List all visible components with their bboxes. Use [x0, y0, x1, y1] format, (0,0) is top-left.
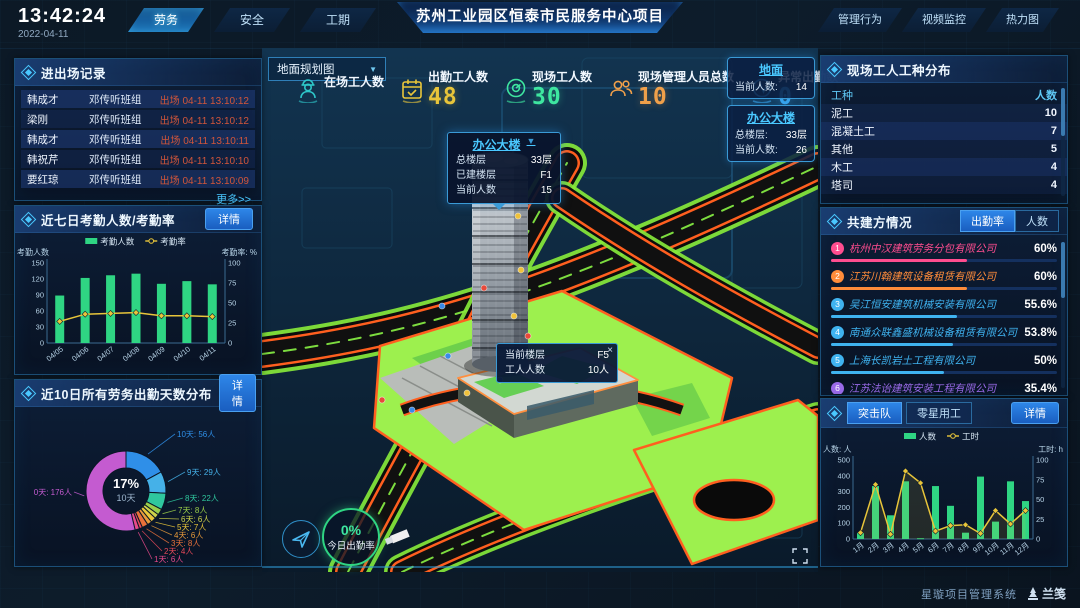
worker-name: 韩成才	[27, 92, 89, 107]
time-text: 13:42:24	[18, 5, 106, 28]
assault-chart: 01002003004005000255075100人数: 人工时: h人数工时…	[821, 428, 1065, 565]
svg-text:50: 50	[1036, 495, 1044, 504]
partner-item: 3吴江恒安建筑机械安装有限公司55.6%	[831, 297, 1057, 318]
building-popup-title[interactable]: 办公大楼	[473, 136, 521, 153]
system-name: 星璇项目管理系统	[921, 586, 1017, 602]
partner-value: 60%	[1034, 271, 1057, 283]
rank-badge: 4	[831, 326, 844, 339]
entry-exit-row: 韩成才邓传听班组出场 04-11 13:10:11	[21, 130, 255, 148]
svg-text:工时: 工时	[962, 432, 980, 442]
worker-type-count: 5	[1017, 143, 1057, 155]
svg-text:04/06: 04/06	[70, 344, 90, 363]
partner-progress-fill	[831, 287, 967, 290]
people-icon	[608, 77, 634, 109]
svg-text:50: 50	[228, 299, 236, 308]
svg-text:0: 0	[40, 339, 44, 348]
svg-text:2月: 2月	[866, 540, 881, 554]
svg-text:17%: 17%	[113, 476, 139, 491]
popup-row-value: F1	[540, 168, 552, 183]
panel-title: 近七日考勤人数/考勤率	[41, 210, 175, 229]
svg-text:04/07: 04/07	[95, 344, 115, 363]
exit-event: 出场 04-11 13:10:11	[160, 132, 249, 147]
worker-type-count: 4	[1017, 179, 1057, 191]
svg-text:04/05: 04/05	[45, 344, 65, 363]
clock: 13:42:24 2022-04-11	[18, 5, 106, 40]
svg-text:400: 400	[837, 471, 850, 480]
svg-text:04/11: 04/11	[198, 344, 218, 362]
svg-text:04/09: 04/09	[146, 344, 166, 363]
floor-card-row-label: 当前人数:	[735, 80, 778, 95]
detail-button[interactable]: 详情	[1011, 402, 1059, 424]
panel-header: 突击队零星用工 详情	[821, 399, 1067, 428]
fullscreen-button[interactable]	[792, 548, 808, 564]
floor-card-title[interactable]: 地面	[735, 61, 807, 78]
partner-name: 吴江恒安建筑机械安装有限公司	[849, 297, 1019, 312]
partner-item: 5上海长凯岩土工程有限公司50%	[831, 353, 1057, 374]
diamond-icon	[21, 64, 37, 80]
svg-text:人数: 人: 人数: 人	[823, 444, 851, 454]
partner-item: 4南通众联鑫盛机械设备租赁有限公司53.8%	[831, 325, 1057, 346]
svg-text:考勤率: %: 考勤率: %	[221, 247, 257, 257]
col-type: 工种	[831, 87, 1017, 103]
stat-在场工人数: 在场工人数	[296, 68, 384, 108]
worker-type-count: 4	[1017, 161, 1057, 173]
popup-row: 当前人数15	[456, 183, 552, 198]
worker-type-row: 木工4	[821, 158, 1067, 176]
svg-text:100: 100	[837, 519, 850, 528]
stat-label: 在场工人数	[324, 75, 384, 89]
partner-name: 杭州中汉建筑劳务分包有限公司	[849, 241, 1029, 256]
svg-text:04/08: 04/08	[121, 344, 141, 363]
partner-tabs: 出勤率人数	[960, 210, 1059, 232]
panel-title: 现场工人工种分布	[847, 60, 951, 79]
worker-group: 邓传听班组	[89, 132, 160, 147]
svg-text:6月: 6月	[926, 540, 941, 554]
partner-progress-track	[831, 287, 1057, 290]
worker-type-row: 泥工10	[821, 104, 1067, 122]
partner-progress-fill	[831, 259, 967, 262]
rank-badge: 2	[831, 270, 844, 283]
rank-badge: 5	[831, 354, 844, 367]
rank-badge: 6	[831, 382, 844, 394]
worker-type-name: 其他	[831, 141, 1017, 157]
partner-progress-track	[831, 259, 1057, 262]
stat-label: 出勤工人数	[428, 70, 488, 84]
partner-item: 2江苏川翰建筑设备租赁有限公司60%	[831, 269, 1057, 290]
worker-type-name: 泥工	[831, 105, 1017, 121]
footer: 星璇项目管理系统 兰笺	[921, 585, 1066, 602]
partner-item: 1杭州中汉建筑劳务分包有限公司60%	[831, 241, 1057, 262]
top-bar: 13:42:24 2022-04-11 劳务安全工期 苏州工业园区恒泰市民服务中…	[0, 0, 1080, 49]
detail-button[interactable]: 详情	[205, 208, 253, 230]
stat-label: 现场管理人员总数	[638, 70, 734, 84]
diamond-icon	[827, 405, 843, 421]
worker-group: 邓传听班组	[89, 92, 160, 107]
tower-logo-icon	[1027, 587, 1039, 601]
partner-value: 60%	[1034, 243, 1057, 255]
worker-type-row: 其他5	[821, 140, 1067, 158]
worker-type-name: 塔司	[831, 177, 1017, 193]
date-text: 2022-04-11	[18, 29, 106, 40]
attendance-panel: 近七日考勤人数/考勤率 详情 03060901201500255075100考勤…	[14, 205, 262, 375]
svg-text:12月: 12月	[1013, 540, 1031, 557]
diamond-icon	[827, 61, 843, 77]
svg-text:3月: 3月	[881, 540, 896, 554]
svg-text:8月: 8月	[956, 540, 971, 554]
partner-progress-fill	[831, 371, 944, 374]
gauge-icon	[504, 77, 528, 109]
partner-name: 南通众联鑫盛机械设备租赁有限公司	[849, 325, 1019, 340]
nav-tab-工期[interactable]: 工期	[300, 8, 376, 32]
panel-header: 进出场记录	[15, 59, 261, 86]
svg-text:120: 120	[31, 275, 44, 284]
worker-type-name: 木工	[831, 159, 1017, 175]
partner-name: 江苏川翰建筑设备租赁有限公司	[849, 269, 1029, 284]
rank-badge: 3	[831, 298, 844, 311]
tooltip-row-label: 工人人数	[505, 363, 545, 378]
svg-text:0: 0	[1036, 535, 1040, 544]
nav-tab-管理行为[interactable]: 管理行为	[818, 8, 902, 32]
floor-card-办公大楼[interactable]: 办公大楼总楼层:33层当前人数:26	[727, 105, 815, 162]
svg-text:04/10: 04/10	[172, 344, 192, 363]
worker-group: 邓传听班组	[89, 172, 160, 187]
svg-text:人数: 人数	[919, 432, 937, 442]
svg-text:4月: 4月	[896, 540, 911, 554]
brand-logo-text: 兰笺	[1042, 585, 1066, 602]
stat-现场工人数: 现场工人数30	[504, 68, 592, 109]
popup-row: 总楼层33层	[456, 153, 552, 168]
svg-text:工时: h: 工时: h	[1038, 444, 1063, 454]
stat-value: 10	[638, 84, 668, 110]
svg-text:150: 150	[31, 259, 44, 268]
svg-text:1天: 6人: 1天: 6人	[154, 555, 183, 564]
tooltip-row-label: 当前楼层	[505, 348, 545, 363]
panel-header: 现场工人工种分布	[821, 56, 1067, 83]
partner-tab-人数[interactable]: 人数	[1015, 210, 1059, 232]
worker-type-count: 10	[1017, 107, 1057, 119]
site-3d-scene: 地面规划图 ▼ 在场工人数出勤工人数48现场工人数30现场管理人员总数10异常出…	[262, 48, 818, 572]
svg-text:75: 75	[228, 279, 236, 288]
partner-name: 上海长凯岩土工程有限公司	[849, 353, 1029, 368]
popup-row-label: 当前人数	[456, 183, 496, 198]
worker-name: 韩祝芹	[27, 152, 89, 167]
distribution-donut: 10天: 56人9天: 29人8天: 22人7天: 8人6天: 6人5天: 7人…	[15, 407, 259, 565]
svg-text:9天: 29人: 9天: 29人	[187, 468, 221, 477]
worker-name: 韩成才	[27, 132, 89, 147]
floor-tooltip: × 当前楼层F5工人人数10人	[496, 343, 618, 383]
floor-card-title[interactable]: 办公大楼	[735, 109, 807, 126]
floor-card-row-label: 总楼层:	[735, 128, 768, 143]
close-icon[interactable]: ×	[607, 345, 613, 356]
nav-tab-安全[interactable]: 安全	[214, 8, 290, 32]
partner-value: 50%	[1034, 355, 1057, 367]
svg-text:75: 75	[1036, 475, 1044, 484]
assault-tabs: 突击队零星用工	[847, 402, 972, 424]
panel-title: 近10日所有劳务出勤天数分布	[41, 384, 212, 403]
panel-title: 进出场记录	[41, 63, 106, 82]
stat-label: 现场工人数	[532, 70, 592, 84]
entry-exit-panel: 进出场记录 韩成才邓传听班组出场 04-11 13:10:12梁刚邓传听班组出场…	[14, 58, 262, 201]
svg-text:考勤人数: 考勤人数	[17, 247, 49, 257]
exit-event: 出场 04-11 13:10:12	[160, 112, 249, 127]
worker-name: 梁刚	[27, 112, 89, 127]
floor-card-row-value: 14	[796, 80, 807, 95]
exit-event: 出场 04-11 13:10:10	[160, 152, 249, 167]
entry-exit-list: 韩成才邓传听班组出场 04-11 13:10:12梁刚邓传听班组出场 04-11…	[15, 86, 261, 188]
floor-card-row-label: 当前人数:	[735, 143, 778, 158]
partner-progress-fill	[831, 315, 957, 318]
worker-types-panel: 现场工人工种分布 工种人数泥工10混凝土工7其他5木工4塔司4	[820, 55, 1068, 204]
entry-exit-row: 韩成才邓传听班组出场 04-11 13:10:12	[21, 90, 255, 108]
col-count: 人数	[1017, 87, 1057, 103]
svg-text:10天: 56人: 10天: 56人	[177, 430, 215, 439]
svg-text:8天: 22人: 8天: 22人	[185, 494, 219, 503]
floor-card-row: 当前人数:26	[735, 143, 807, 158]
nav-tab-视频监控[interactable]: 视频监控	[902, 8, 986, 32]
floor-card-row: 总楼层:33层	[735, 128, 807, 143]
svg-text:0: 0	[228, 339, 232, 348]
popup-row: 已建楼层F1	[456, 168, 552, 183]
tooltip-row: 当前楼层F5	[505, 348, 609, 363]
entry-exit-row: 要红琼邓传听班组出场 04-11 13:10:09	[21, 170, 255, 188]
floor-card-row-value: 26	[796, 143, 807, 158]
floor-card-地面[interactable]: 地面当前人数:14	[727, 57, 815, 99]
pond	[694, 480, 774, 520]
svg-text:100: 100	[228, 259, 241, 268]
scrollbar[interactable]	[1061, 242, 1065, 388]
partner-name: 江苏法诒建筑安装工程有限公司	[849, 381, 1019, 394]
popup-row-label: 已建楼层	[456, 168, 496, 183]
diamond-icon	[827, 213, 843, 229]
building-popup-rows: 总楼层33层已建楼层F1当前人数15	[456, 153, 552, 198]
worker-group: 邓传听班组	[89, 152, 160, 167]
worker-icon	[296, 77, 320, 108]
stat-value: 48	[428, 84, 458, 110]
calendar-check-icon	[400, 77, 424, 109]
partner-progress-fill	[831, 343, 953, 346]
partner-tab-出勤率[interactable]: 出勤率	[960, 210, 1015, 232]
partner-value: 55.6%	[1024, 299, 1057, 311]
today-attendance-value: 0%	[341, 522, 361, 538]
assault-panel: 突击队零星用工 详情 01002003004005000255075100人数:…	[820, 398, 1068, 567]
svg-text:考勤人数: 考勤人数	[100, 237, 135, 247]
popup-row-value: 15	[541, 183, 552, 198]
partner-progress-track	[831, 315, 1057, 318]
partner-value: 35.4%	[1024, 383, 1057, 395]
exit-event: 出场 04-11 13:10:12	[160, 92, 249, 107]
worker-types-table: 工种人数泥工10混凝土工7其他5木工4塔司4	[821, 86, 1067, 194]
floor-cards: 地面当前人数:14办公大楼总楼层:33层当前人数:26	[727, 57, 815, 162]
floor-card-row: 当前人数:14	[735, 80, 807, 95]
svg-text:5月: 5月	[911, 540, 926, 554]
svg-text:90: 90	[36, 291, 44, 300]
assault-tab-零星用工[interactable]: 零星用工	[906, 402, 972, 424]
svg-text:7天: 8人: 7天: 8人	[178, 506, 207, 515]
panel-header: 近七日考勤人数/考勤率 详情	[15, 206, 261, 233]
scene-bottom-glow	[262, 566, 818, 568]
worker-name: 要红琼	[27, 172, 89, 187]
distribution-panel: 近10日所有劳务出勤天数分布 详情 10天: 56人9天: 29人8天: 22人…	[14, 379, 262, 567]
tooltip-row: 工人人数10人	[505, 363, 609, 378]
worker-types-header: 工种人数	[821, 86, 1067, 104]
today-attendance-label: 今日出勤率	[327, 538, 375, 552]
stat-value: 30	[532, 84, 562, 110]
dashboard-root: 13:42:24 2022-04-11 劳务安全工期 苏州工业园区恒泰市民服务中…	[0, 0, 1080, 608]
svg-text:0天: 176人: 0天: 176人	[34, 488, 72, 497]
svg-text:10天: 10天	[116, 493, 135, 503]
svg-text:100: 100	[1036, 456, 1049, 465]
svg-text:1月: 1月	[851, 540, 866, 554]
worker-type-row: 塔司4	[821, 176, 1067, 194]
svg-text:25: 25	[1036, 515, 1044, 524]
fullscreen-icon	[792, 548, 808, 564]
worker-type-count: 7	[1017, 125, 1057, 137]
page-title: 苏州工业园区恒泰市民服务中心项目	[397, 2, 683, 32]
partner-progress-track	[831, 343, 1057, 346]
scrollbar[interactable]	[1061, 88, 1065, 196]
partners-panel: 共建方情况 出勤率人数 1杭州中汉建筑劳务分包有限公司60%2江苏川翰建筑设备租…	[820, 207, 1068, 396]
compass-icon	[290, 528, 312, 550]
nav-tab-热力图[interactable]: 热力图	[986, 8, 1059, 32]
entry-exit-row: 梁刚邓传听班组出场 04-11 13:10:12	[21, 110, 255, 128]
svg-text:7月: 7月	[941, 540, 956, 554]
diamond-icon	[21, 211, 37, 227]
svg-text:200: 200	[837, 503, 850, 512]
svg-text:500: 500	[837, 456, 850, 465]
partner-progress-track	[831, 371, 1057, 374]
exit-event: 出场 04-11 13:10:09	[160, 172, 249, 187]
page-title-banner: 苏州工业园区恒泰市民服务中心项目	[397, 2, 683, 33]
panel-header: 共建方情况 出勤率人数	[821, 208, 1067, 235]
partner-value: 53.8%	[1024, 327, 1057, 339]
building-popup[interactable]: 办公大楼 ▼ 总楼层33层已建楼层F1当前人数15	[447, 132, 561, 204]
nav-tab-劳务[interactable]: 劳务	[128, 8, 204, 32]
brand-logo: 兰笺	[1027, 585, 1066, 602]
svg-text:60: 60	[36, 307, 44, 316]
floor-card-row-value: 33层	[786, 128, 807, 143]
svg-text:30: 30	[36, 323, 44, 332]
diamond-icon	[21, 385, 37, 401]
floor-tooltip-rows: 当前楼层F5工人人数10人	[505, 348, 609, 378]
assault-tab-突击队[interactable]: 突击队	[847, 402, 902, 424]
rank-badge: 1	[831, 242, 844, 255]
svg-text:25: 25	[228, 319, 236, 328]
worker-type-name: 混凝土工	[831, 123, 1017, 139]
panel-header: 近10日所有劳务出勤天数分布 详情	[15, 380, 261, 407]
stat-出勤工人数: 出勤工人数48	[400, 68, 488, 109]
svg-text:考勤率: 考勤率	[160, 237, 186, 247]
compass-control[interactable]	[282, 520, 320, 558]
today-attendance-gauge: 0% 今日出勤率	[322, 508, 380, 566]
svg-text:300: 300	[837, 487, 850, 496]
partner-item: 6江苏法诒建筑安装工程有限公司35.4%	[831, 381, 1057, 394]
svg-text:0: 0	[846, 535, 850, 544]
worker-group: 邓传听班组	[89, 112, 160, 127]
tooltip-row-value: 10人	[588, 363, 609, 378]
entry-exit-row: 韩祝芹邓传听班组出场 04-11 13:10:10	[21, 150, 255, 168]
popup-row-value: 33层	[531, 153, 552, 168]
stat-现场管理人员总数: 现场管理人员总数10	[608, 68, 734, 109]
worker-type-row: 混凝土工7	[821, 122, 1067, 140]
attendance-chart: 03060901201500255075100考勤人数考勤率: %考勤人数考勤率…	[15, 233, 259, 373]
partner-list: 1杭州中汉建筑劳务分包有限公司60%2江苏川翰建筑设备租赁有限公司60%3吴江恒…	[821, 235, 1067, 394]
popup-row-label: 总楼层	[456, 153, 486, 168]
panel-title: 共建方情况	[847, 212, 912, 231]
chevron-down-icon[interactable]: ▼	[527, 136, 536, 153]
